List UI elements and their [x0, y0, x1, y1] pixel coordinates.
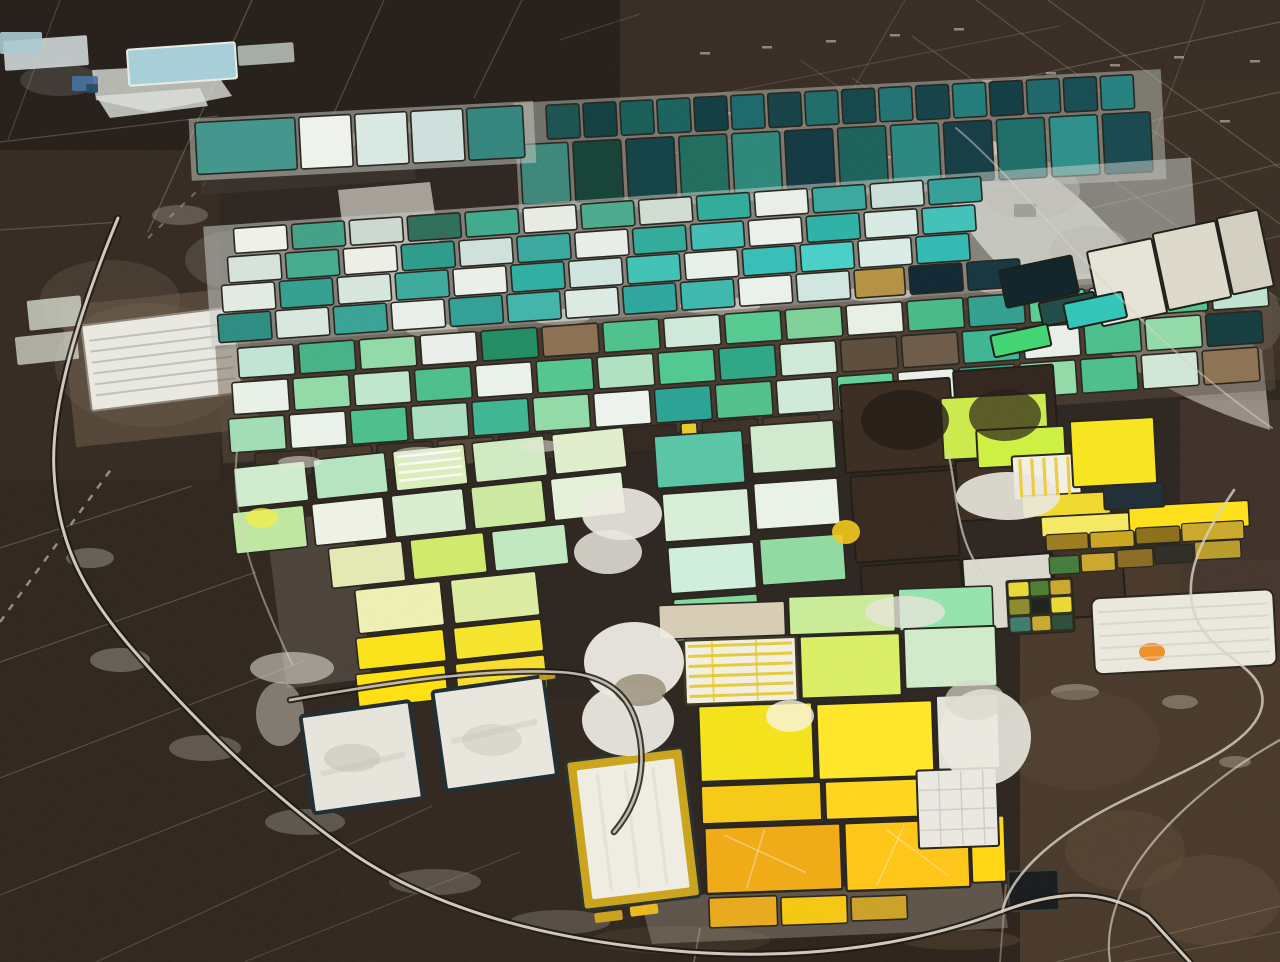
film-grain-overlay	[0, 0, 1280, 962]
aerial-photograph-lithium-evaporation-ponds	[0, 0, 1280, 962]
evaporation-pond-scene	[0, 0, 1280, 962]
